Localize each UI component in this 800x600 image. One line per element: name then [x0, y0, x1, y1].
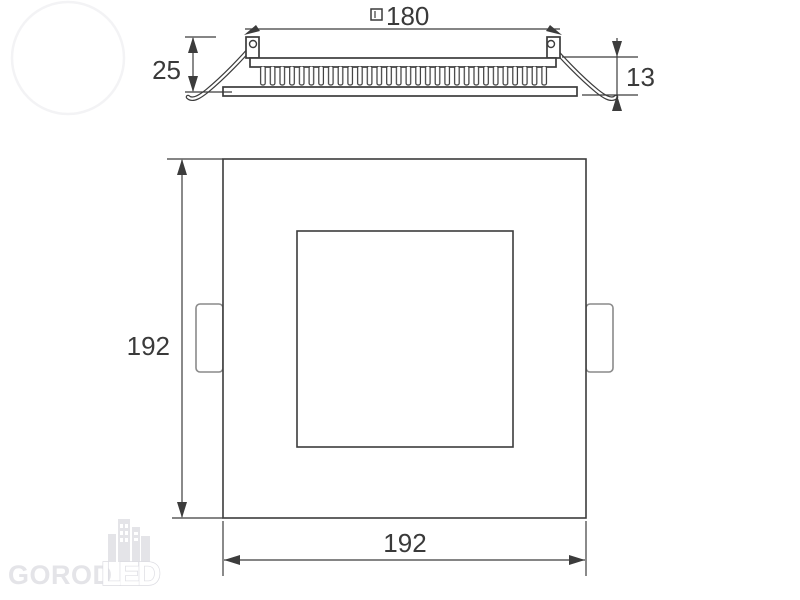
- dimension-arrow-left: [224, 555, 240, 565]
- section-view: 180 25: [152, 1, 655, 111]
- frame-rim: [250, 58, 556, 67]
- panel-height-label: 192: [127, 331, 170, 361]
- watermark-text-primary: GOROD: [8, 560, 113, 590]
- panel-width-label: 192: [383, 528, 426, 558]
- dimension-cutout: 180: [244, 1, 562, 35]
- dimension-arrow-down: [188, 76, 198, 92]
- dimension-depth: 25: [152, 37, 232, 92]
- dimension-arrow-right: [546, 25, 562, 35]
- technical-drawing: 180 25: [0, 0, 800, 600]
- mounting-tab-right: [586, 304, 613, 372]
- panel-face: [223, 87, 577, 96]
- square-symbol-icon: [371, 9, 382, 20]
- dimension-arrow-down: [177, 502, 187, 518]
- watermark-text-accent: LED: [101, 555, 160, 592]
- height-dimension-label: 13: [626, 62, 655, 92]
- cutout-dimension-label: 180: [386, 1, 429, 31]
- depth-dimension-label: 25: [152, 55, 181, 85]
- dimension-arrow-left: [244, 25, 260, 35]
- faint-circle-watermark: [12, 2, 124, 114]
- drawing-canvas: 180 25: [0, 0, 800, 600]
- watermark-logo: GOROD LED: [8, 519, 160, 592]
- front-view: 192 192: [127, 159, 613, 576]
- outer-frame: [223, 159, 586, 518]
- dimension-arrow-up: [177, 159, 187, 175]
- clip-pivot-right: [548, 41, 555, 48]
- dimension-arrow-right: [569, 555, 585, 565]
- dimension-panel-width: 192: [223, 521, 586, 576]
- dimension-arrow-down: [612, 41, 622, 57]
- clip-pivot-left: [250, 41, 257, 48]
- dimension-arrow-up: [188, 37, 198, 53]
- mounting-tab-left: [196, 304, 223, 372]
- heatsink-fins: [258, 66, 549, 88]
